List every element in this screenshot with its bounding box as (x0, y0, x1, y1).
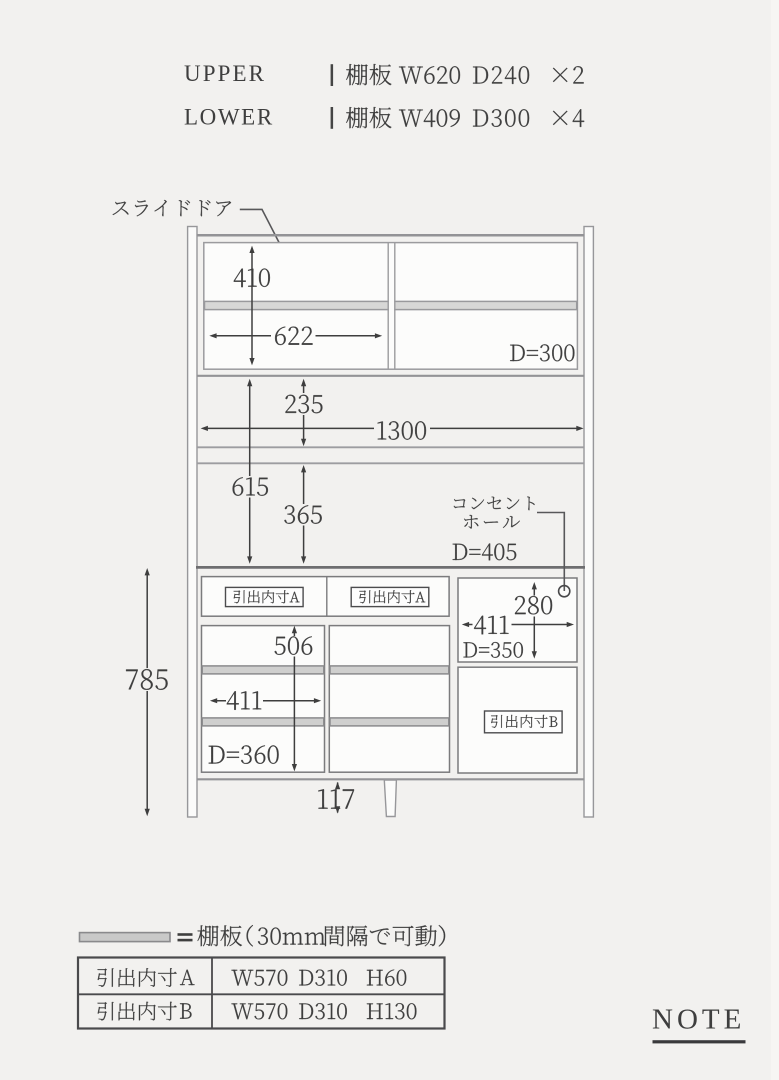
svg-text:LOWER: LOWER (184, 105, 274, 130)
svg-text:UPPER: UPPER (184, 61, 266, 86)
svg-text:NOTE: NOTE (652, 1004, 745, 1036)
